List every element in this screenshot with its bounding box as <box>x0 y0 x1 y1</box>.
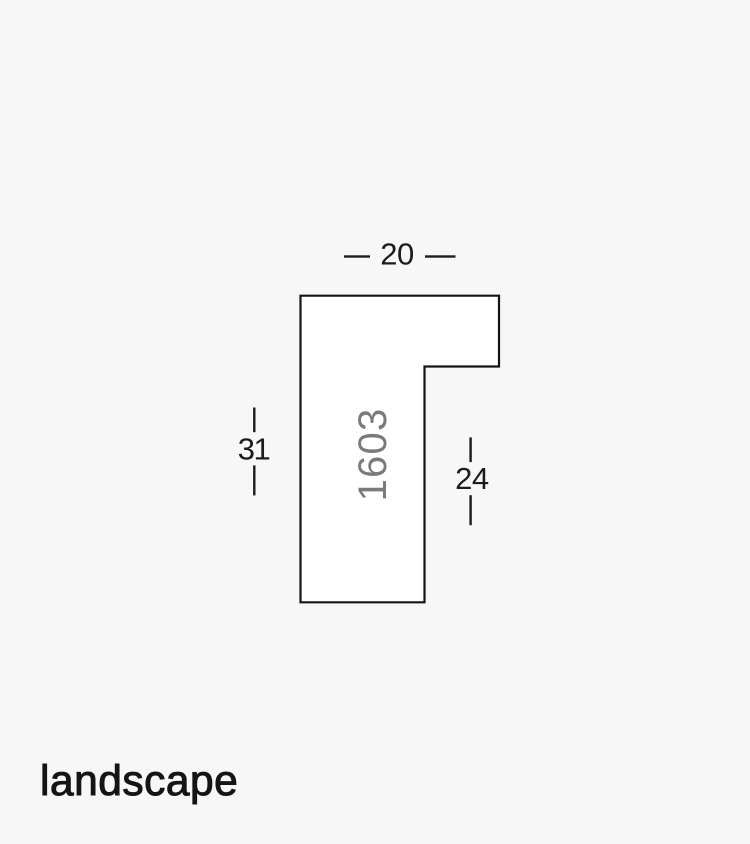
svg-text:landscape: landscape <box>40 758 238 805</box>
svg-text:24: 24 <box>455 461 489 496</box>
svg-text:1603: 1603 <box>351 408 395 502</box>
svg-text:20: 20 <box>380 237 414 272</box>
svg-text:31: 31 <box>238 431 270 466</box>
